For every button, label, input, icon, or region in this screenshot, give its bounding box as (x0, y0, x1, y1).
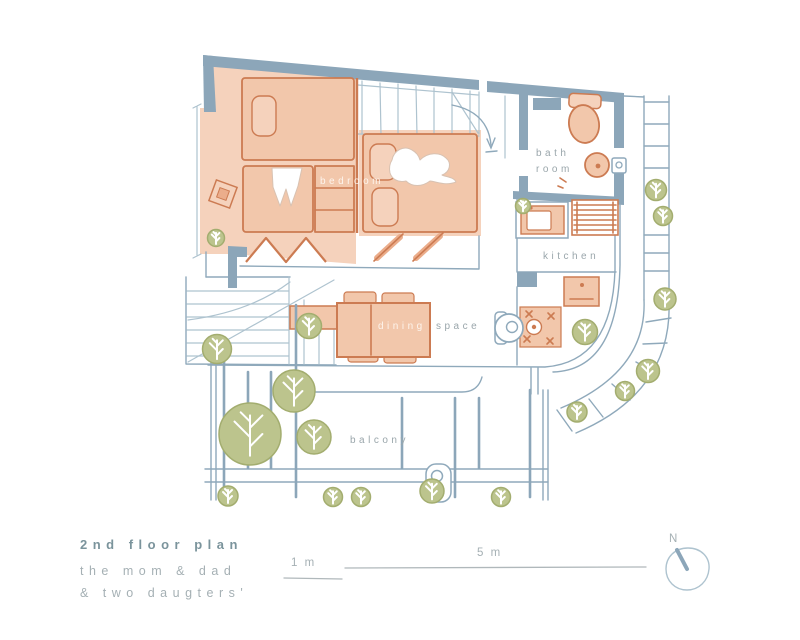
tree-icon (654, 288, 676, 310)
tree-icon (203, 335, 232, 364)
dining-label-word2: space (436, 321, 480, 332)
plant-icon (516, 199, 531, 214)
scale-minor-label: 1 m (291, 557, 316, 569)
tree-icon (273, 370, 315, 412)
kitchen-sink (527, 211, 551, 230)
compass: N (666, 533, 709, 590)
tree-icon (352, 488, 371, 507)
pillow (372, 188, 398, 226)
tree-icon (218, 486, 238, 506)
bathroom-label-line1: bath (536, 148, 569, 159)
kitchen-fixtures (495, 200, 618, 347)
plan-subtitle-line1: the mom & dad (80, 564, 236, 578)
bathroom-label-line2: room (536, 164, 573, 175)
title-block: 2nd floor plan the mom & dad & two daugt… (80, 537, 248, 600)
kitchen-label: kitchen (543, 251, 599, 262)
tree-icon (567, 402, 587, 422)
toilet-bowl (567, 103, 602, 145)
tree-icon (297, 420, 331, 454)
scale-bar: 1 m 5 m (284, 547, 646, 579)
floor-plan-canvas: bedroom bath room kitchen dining space b… (0, 0, 800, 640)
pillow (252, 96, 276, 136)
bedroom-label: bedroom (320, 176, 384, 187)
tree-icon (654, 207, 673, 226)
tree-icon (573, 320, 598, 345)
stove-mat (520, 307, 561, 347)
sink-fitting (612, 158, 626, 173)
tree-icon (420, 479, 444, 503)
dining-label-word1: dining (378, 321, 426, 332)
plant-icon (208, 230, 225, 247)
plan-subtitle-line2: & two daugters' (80, 586, 248, 600)
balcony-label: balcony (350, 435, 409, 446)
tree-icon (492, 488, 511, 507)
compass-north-label: N (669, 533, 679, 545)
scale-major-label: 5 m (477, 547, 502, 559)
tree-icon (219, 403, 281, 465)
floor-plan-page: bedroom bath room kitchen dining space b… (0, 0, 800, 640)
tree-icon (646, 180, 667, 201)
tree-icon (324, 488, 343, 507)
compass-needle (677, 550, 687, 569)
drying-rack (572, 200, 618, 235)
plan-title: 2nd floor plan (80, 537, 243, 552)
tree-icon (297, 314, 322, 339)
counter-seat (495, 312, 523, 344)
closet-rails (377, 236, 440, 258)
refrigerator (564, 277, 599, 306)
tree-icon (616, 382, 635, 401)
tree-icon (637, 360, 660, 383)
